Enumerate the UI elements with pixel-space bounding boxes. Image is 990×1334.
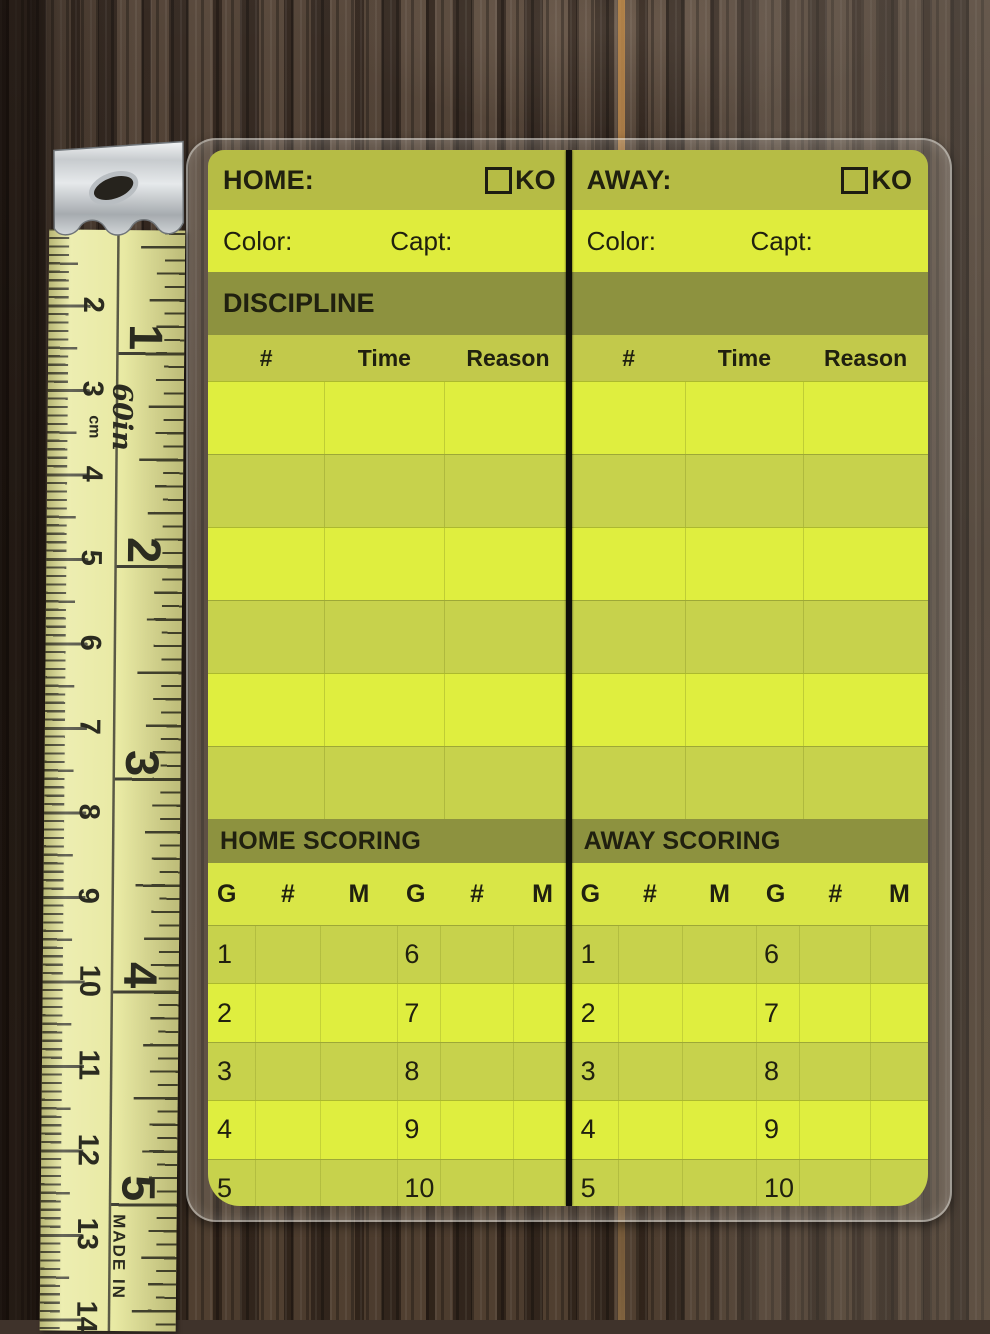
- away-discipline-columns: # Time Reason: [572, 335, 928, 381]
- ruler-inch-label: 2: [117, 537, 172, 564]
- goal-number: 10: [404, 1160, 434, 1206]
- ruler-cm-label: 13: [70, 1217, 103, 1250]
- ruler-inch-label: 4: [113, 962, 168, 989]
- goal-number: 4: [217, 1101, 232, 1158]
- home-scoring-band: HOME SCORING: [208, 819, 572, 863]
- discipline-cells: [572, 528, 928, 600]
- home-min2-col: M: [513, 880, 571, 909]
- away-scoring-columns: G # M G # M: [572, 863, 928, 925]
- home-num2-col: #: [441, 880, 514, 909]
- home-min1-col: M: [321, 880, 397, 909]
- ruler-inch-label: 1: [119, 324, 174, 351]
- ruler-cm-label: 5: [74, 550, 107, 566]
- home-g1-col: G: [208, 880, 255, 909]
- away-num1-col: #: [618, 880, 682, 909]
- goal-number: 1: [581, 926, 596, 983]
- home-col-time: Time: [324, 345, 444, 372]
- tape-measure: 2 3 4 5 6 7 8 9 10 11 12 13 14 1 2 3 4 5…: [40, 144, 186, 1325]
- goal-number: 7: [404, 984, 419, 1041]
- away-scoring-title: AWAY SCORING: [572, 827, 781, 856]
- ruler-cm-label: 6: [73, 635, 106, 651]
- discipline-cells: [572, 382, 928, 454]
- discipline-cells: [572, 674, 928, 746]
- home-score-cells: 49: [208, 1101, 572, 1158]
- away-scoring-band: AWAY SCORING: [572, 819, 928, 863]
- tape-clip: [46, 137, 189, 242]
- ruler-cm-label: 9: [71, 888, 104, 904]
- goal-number: 6: [404, 926, 419, 983]
- away-color-capt: Color: Capt:: [572, 210, 928, 272]
- away-color-label: Color:: [572, 226, 751, 257]
- home-header: HOME: KO: [208, 150, 572, 210]
- goal-number: 8: [404, 1043, 419, 1100]
- ruler-cm-label: 3: [75, 381, 108, 397]
- home-score-cells: 38: [208, 1043, 572, 1100]
- ruler-inch-label: 3: [115, 750, 170, 777]
- discipline-cells: [208, 528, 572, 600]
- ruler-cm-label: 2: [76, 297, 109, 313]
- home-score-cells: 510: [208, 1160, 572, 1206]
- away-score-cells: 27: [572, 984, 928, 1041]
- away-col-time: Time: [686, 345, 804, 372]
- goal-number: 9: [404, 1101, 419, 1158]
- away-num2-col: #: [800, 880, 871, 909]
- home-ko-checkbox: [485, 167, 512, 194]
- away-col-num: #: [572, 345, 686, 372]
- laminated-card: HOME: KO AWAY: KO Color: Capt: C: [186, 138, 952, 1222]
- goal-number: 4: [581, 1101, 596, 1158]
- home-capt-label: Capt:: [390, 226, 571, 257]
- away-col-reason: Reason: [803, 345, 928, 372]
- away-ko-label: KO: [871, 165, 912, 196]
- away-capt-label: Capt:: [751, 226, 928, 257]
- ruler-cm-label: 12: [71, 1133, 104, 1166]
- home-discipline-columns: # Time Reason: [208, 335, 572, 381]
- goal-number: 10: [764, 1160, 794, 1206]
- home-col-reason: Reason: [444, 345, 571, 372]
- goal-number: 2: [581, 984, 596, 1041]
- home-title: HOME:: [208, 165, 314, 196]
- goal-number: 5: [217, 1160, 232, 1206]
- goal-number: 8: [764, 1043, 779, 1100]
- home-color-label: Color:: [208, 226, 390, 257]
- goal-number: 3: [581, 1043, 596, 1100]
- goal-number: 2: [217, 984, 232, 1041]
- discipline-cells: [572, 601, 928, 673]
- home-num1-col: #: [255, 880, 320, 909]
- ruler-cm-label: 14: [69, 1300, 102, 1333]
- ruler-cm-label: 7: [72, 719, 105, 735]
- discipline-cells: [208, 601, 572, 673]
- ruler-cm-label: 8: [72, 804, 105, 820]
- away-score-cells: 49: [572, 1101, 928, 1158]
- away-score-cells: 510: [572, 1160, 928, 1206]
- card-center-divider: [566, 150, 572, 1206]
- ruler-inch-label: 5: [111, 1175, 166, 1202]
- referee-scorecard: HOME: KO AWAY: KO Color: Capt: C: [208, 150, 928, 1206]
- home-score-cells: 16: [208, 926, 572, 983]
- away-title: AWAY:: [572, 165, 672, 196]
- goal-number: 1: [217, 926, 232, 983]
- discipline-cells: [208, 747, 572, 819]
- home-scoring-title: HOME SCORING: [208, 827, 421, 856]
- away-g2-col: G: [757, 880, 800, 909]
- home-score-cells: 27: [208, 984, 572, 1041]
- home-ko-label: KO: [515, 165, 556, 196]
- away-header: AWAY: KO: [572, 150, 928, 210]
- away-min2-col: M: [871, 880, 928, 909]
- ruler-cm-label: 4: [75, 466, 108, 482]
- ruler-made-in-label: MADE IN: [108, 1214, 129, 1300]
- ruler-cm-unit-label: cm: [84, 415, 102, 438]
- away-min1-col: M: [682, 880, 757, 909]
- ruler-cm-label: 11: [71, 1049, 104, 1080]
- goal-number: 3: [217, 1043, 232, 1100]
- away-ko-group: KO: [841, 165, 928, 196]
- discipline-cells: [572, 747, 928, 819]
- away-ko-checkbox: [841, 167, 868, 194]
- goal-number: 6: [764, 926, 779, 983]
- away-score-cells: 16: [572, 926, 928, 983]
- discipline-cells: [208, 674, 572, 746]
- away-score-cells: 38: [572, 1043, 928, 1100]
- discipline-band-right: [572, 272, 928, 335]
- goal-number: 9: [764, 1101, 779, 1158]
- discipline-cells: [572, 455, 928, 527]
- discipline-band-left: DISCIPLINE: [208, 272, 572, 335]
- ruler-length-label: 60in: [106, 383, 138, 451]
- discipline-title: DISCIPLINE: [208, 288, 375, 319]
- goal-number: 7: [764, 984, 779, 1041]
- home-color-capt: Color: Capt:: [208, 210, 572, 272]
- goal-number: 5: [581, 1160, 596, 1206]
- discipline-cells: [208, 382, 572, 454]
- home-col-num: #: [208, 345, 324, 372]
- home-ko-group: KO: [485, 165, 572, 196]
- home-g2-col: G: [397, 880, 441, 909]
- discipline-cells: [208, 455, 572, 527]
- away-g1-col: G: [572, 880, 618, 909]
- home-scoring-columns: G # M G # M: [208, 863, 572, 925]
- ruler-cm-label: 10: [72, 965, 105, 998]
